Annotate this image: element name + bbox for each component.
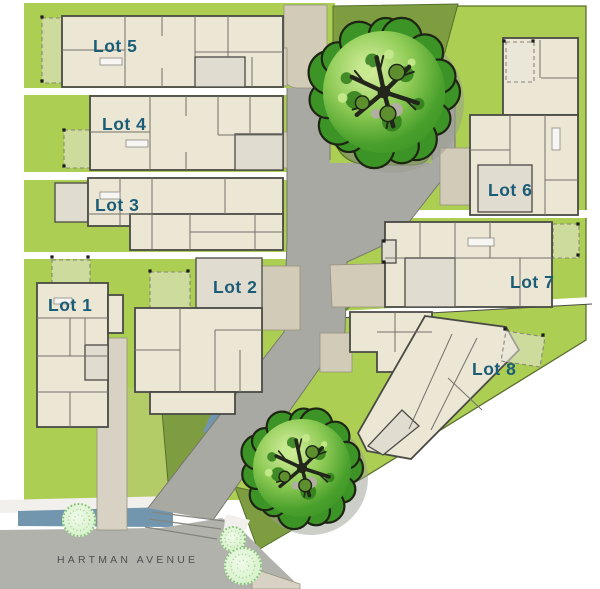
lot2-driveway [262,266,300,330]
lot-5: Lot 5 [42,16,283,87]
street-name-label: HARTMAN AVENUE [57,554,198,566]
lot6-kitchen-island [552,128,560,150]
lot3-garage [55,183,88,222]
lot2-house-stub [150,392,235,414]
lot7-porch [553,224,579,258]
lot6-label: Lot 6 [488,180,532,200]
lot-2: Lot 2 [135,258,262,414]
lot4-garage [235,134,283,170]
lot2-carport [150,272,190,310]
lot-7: Lot 7 [382,222,579,307]
lot7-label: Lot 7 [510,272,554,292]
lot1-label: Lot 1 [48,295,92,315]
lot8-label: Lot 8 [472,359,516,379]
lot5-lot4-gap [24,88,311,95]
site-plan: Lot 5 Lot 4 Lot 3 Lot 1 Lot 2 [0,0,600,589]
lot6-porch [506,42,534,82]
site-plan-svg: Lot 5 Lot 4 Lot 3 Lot 1 Lot 2 [0,0,600,589]
lot3-lot1-gap [24,252,311,259]
lot7-kitchen-island [468,238,494,246]
lot1-house-bump [108,295,123,333]
lot-4: Lot 4 [64,96,283,170]
lot8-driveway [320,333,352,372]
lot5-kitchen-island [100,58,122,65]
lot7-garage [405,258,455,307]
lot1-porch [52,260,90,283]
lot4-kitchen-island [126,140,148,147]
lot5-garage [195,57,245,87]
lot5-label: Lot 5 [93,36,137,56]
lot7-entry [382,240,396,263]
lot3-label: Lot 3 [95,195,139,215]
lot1-garage [85,345,108,380]
lot4-label: Lot 4 [102,114,146,134]
lot4-porch [64,130,90,168]
lot5-porch [42,18,62,83]
lot2-label: Lot 2 [213,277,257,297]
